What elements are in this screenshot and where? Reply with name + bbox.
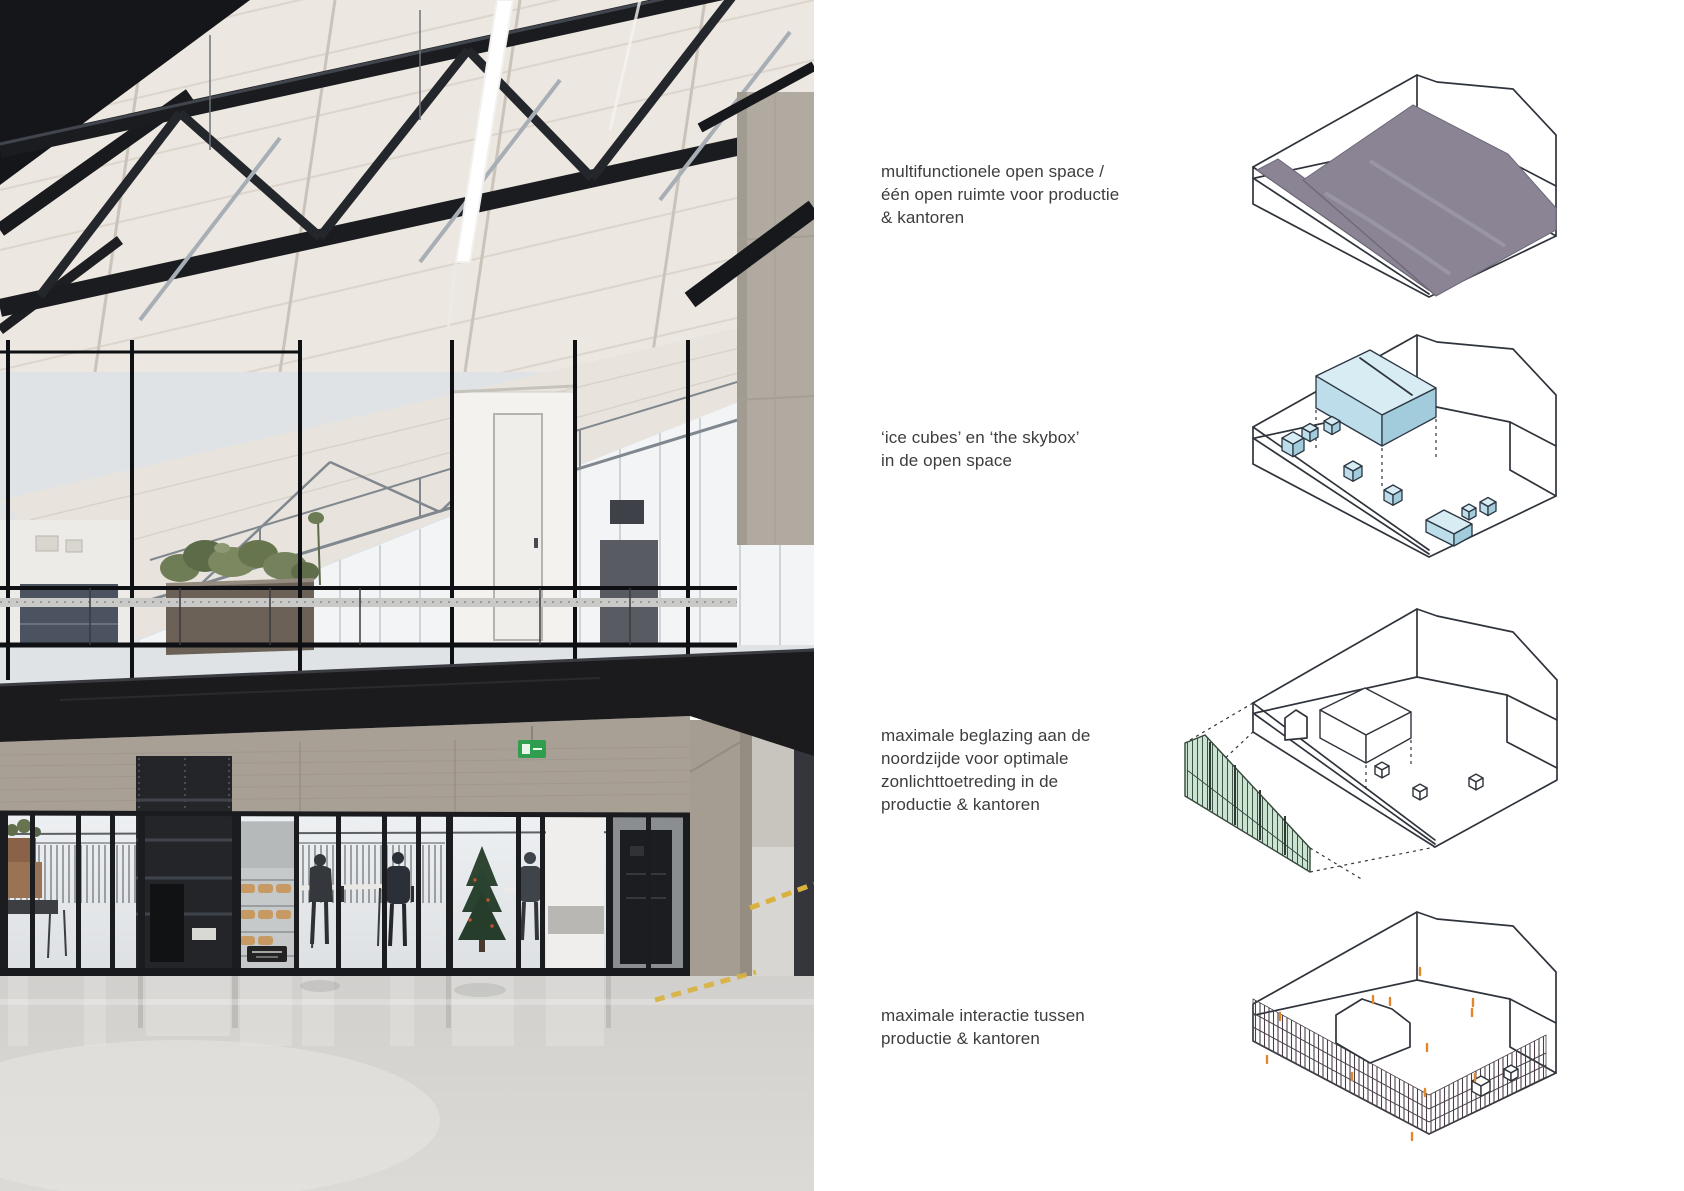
diagram-interaction xyxy=(1240,895,1580,1165)
caption-ice-cubes-skybox: ‘ice cubes’ en ‘the skybox’ in de open s… xyxy=(881,426,1111,472)
caption-line: noordzijde voor optimale xyxy=(881,747,1111,770)
black-shelving-unit xyxy=(136,756,232,972)
caption-line: één open ruimte voor productie xyxy=(881,183,1111,206)
caption-line: productie & kantoren xyxy=(881,1027,1111,1050)
caption-line: multifunctionele open space / xyxy=(881,160,1111,183)
caption-line: zonlichttoetreding in de xyxy=(881,770,1111,793)
bread-rack xyxy=(236,822,298,972)
cable-tray xyxy=(0,598,737,607)
interior-photo-illustration xyxy=(0,0,814,1191)
diagram-north-glazing xyxy=(1155,582,1575,882)
caption-line: ‘ice cubes’ en ‘the skybox’ xyxy=(881,426,1111,449)
left-office-interior xyxy=(0,520,132,645)
diagram-open-space-floorplate xyxy=(1240,58,1580,328)
caption-line: in de open space xyxy=(881,449,1111,472)
caption-interaction: maximale interactie tussen productie & k… xyxy=(881,1004,1111,1050)
diagram-ice-cubes-skybox xyxy=(1240,318,1580,588)
polished-floor xyxy=(0,972,814,1191)
brochure-page: multifunctionele open space / één open r… xyxy=(0,0,1684,1191)
caption-line: maximale interactie tussen xyxy=(881,1004,1111,1027)
interior-photo xyxy=(0,0,814,1191)
caption-line: productie & kantoren xyxy=(881,793,1111,816)
caption-open-space: multifunctionele open space / één open r… xyxy=(881,160,1111,229)
caption-line: maximale beglazing aan de xyxy=(881,724,1111,747)
caption-north-glazing: maximale beglazing aan de noordzijde voo… xyxy=(881,724,1111,816)
caption-line: & kantoren xyxy=(881,206,1111,229)
